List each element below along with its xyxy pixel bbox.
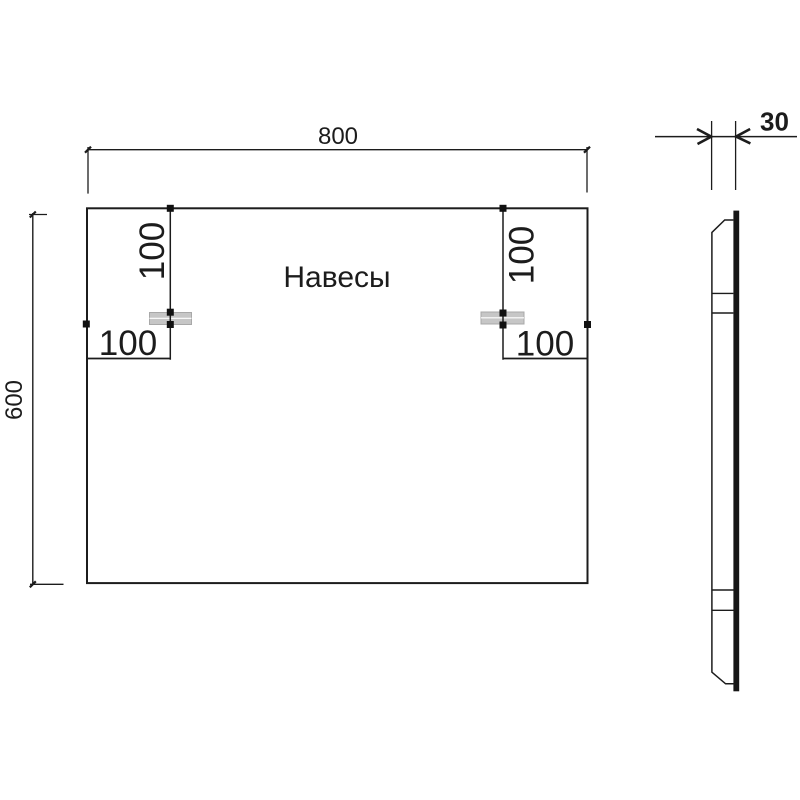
- svg-text:Навесы: Навесы: [283, 261, 390, 294]
- svg-text:600: 600: [1, 380, 28, 420]
- svg-text:30: 30: [760, 107, 789, 137]
- svg-text:100: 100: [503, 226, 542, 284]
- svg-text:100: 100: [133, 222, 172, 280]
- svg-text:100: 100: [516, 325, 574, 364]
- svg-text:800: 800: [318, 123, 358, 150]
- svg-text:100: 100: [99, 324, 157, 363]
